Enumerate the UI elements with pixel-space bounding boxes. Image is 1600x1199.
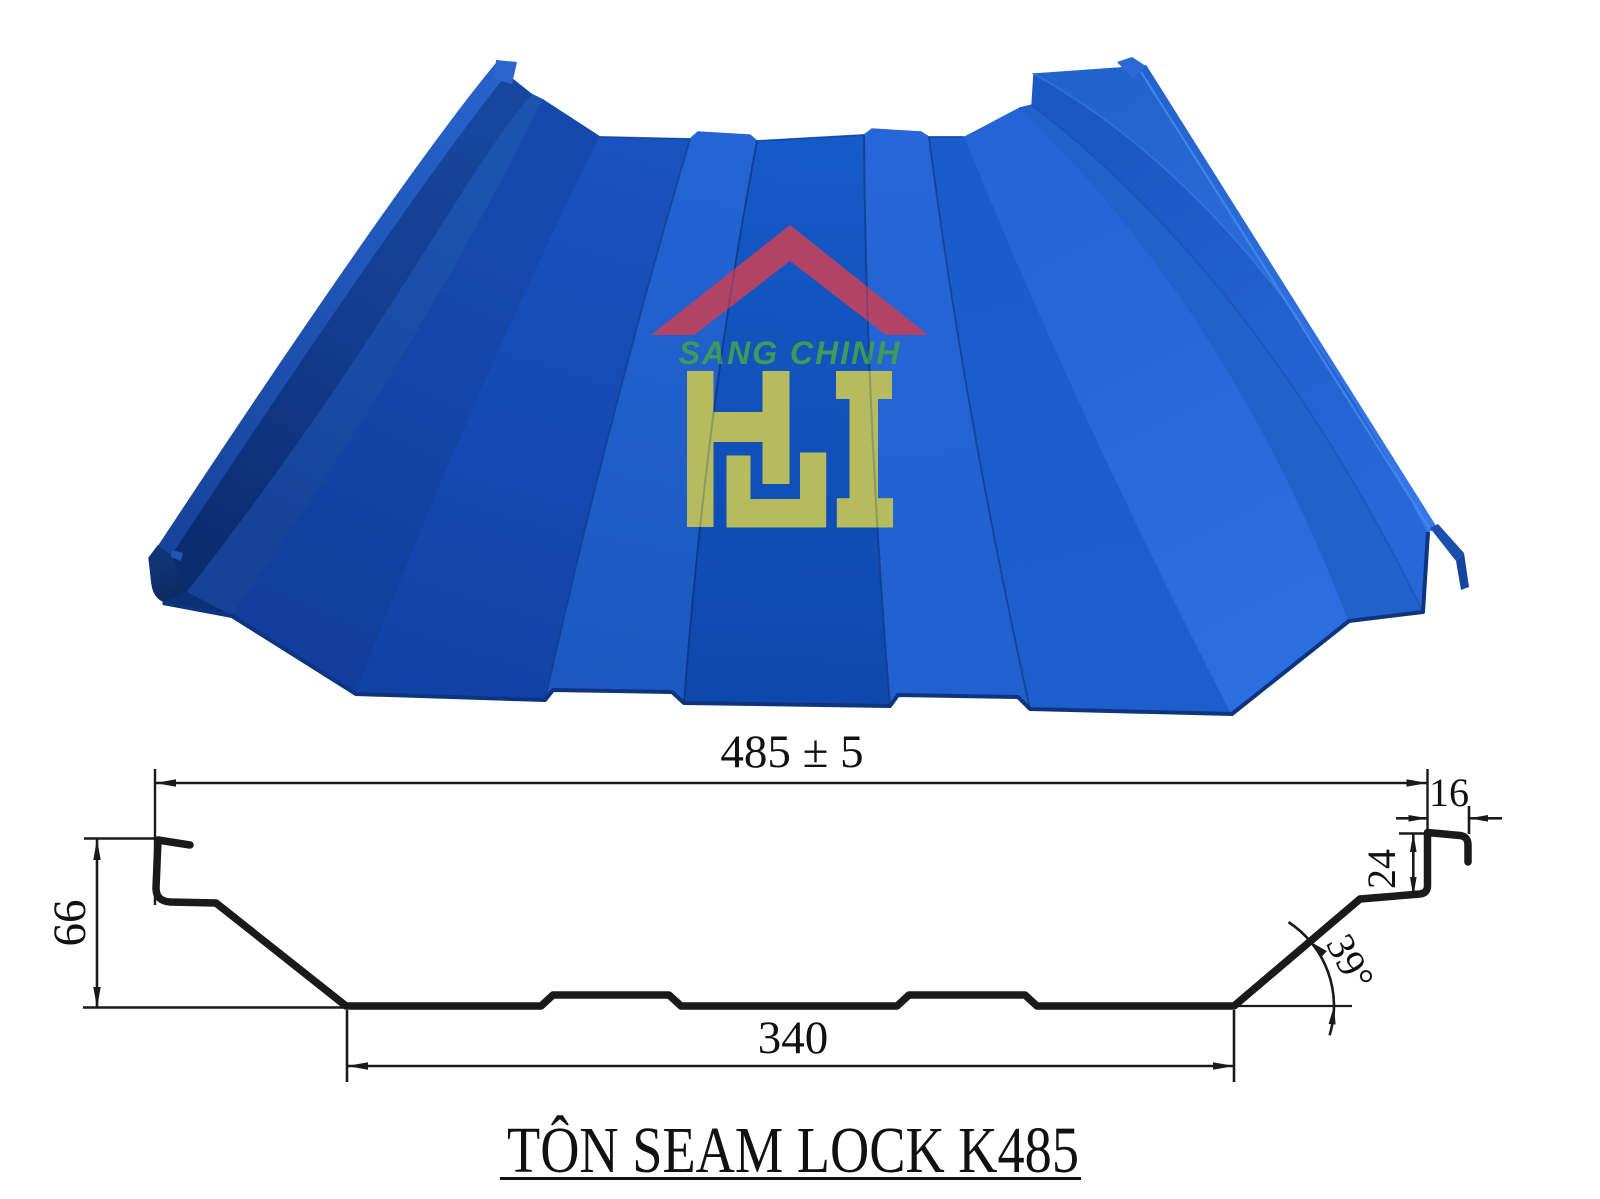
svg-text:TÔN SEAM LOCK K485: TÔN SEAM LOCK K485 <box>507 1114 1079 1187</box>
svg-text:66: 66 <box>44 900 96 947</box>
svg-text:16: 16 <box>1429 770 1469 815</box>
svg-text:39°: 39° <box>1317 926 1383 997</box>
svg-text:24: 24 <box>1359 849 1404 889</box>
svg-text:340: 340 <box>758 1012 829 1064</box>
svg-text:485 ± 5: 485 ± 5 <box>720 726 863 778</box>
